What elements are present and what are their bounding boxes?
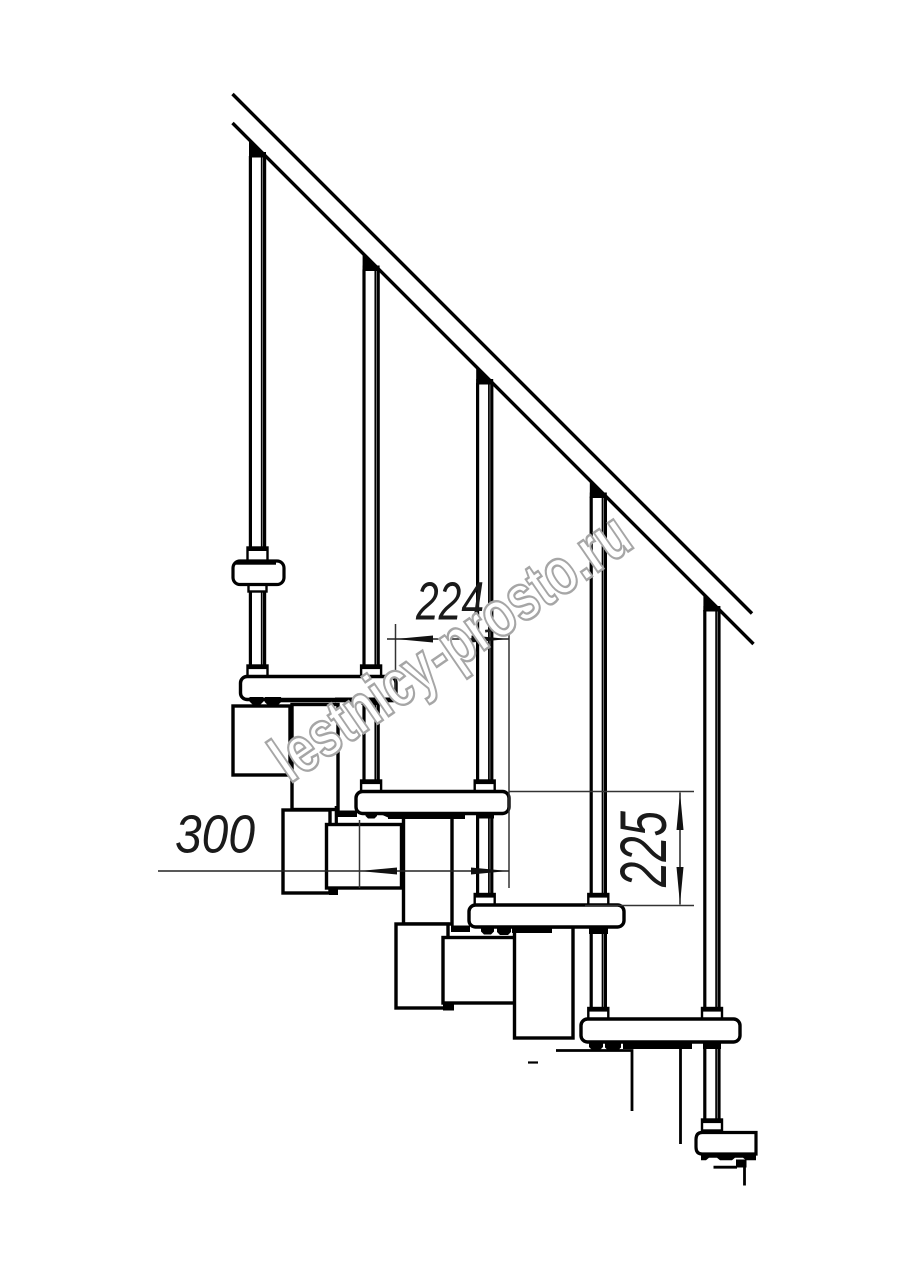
svg-text:300: 300 xyxy=(175,805,255,865)
svg-text:225: 225 xyxy=(606,811,680,888)
